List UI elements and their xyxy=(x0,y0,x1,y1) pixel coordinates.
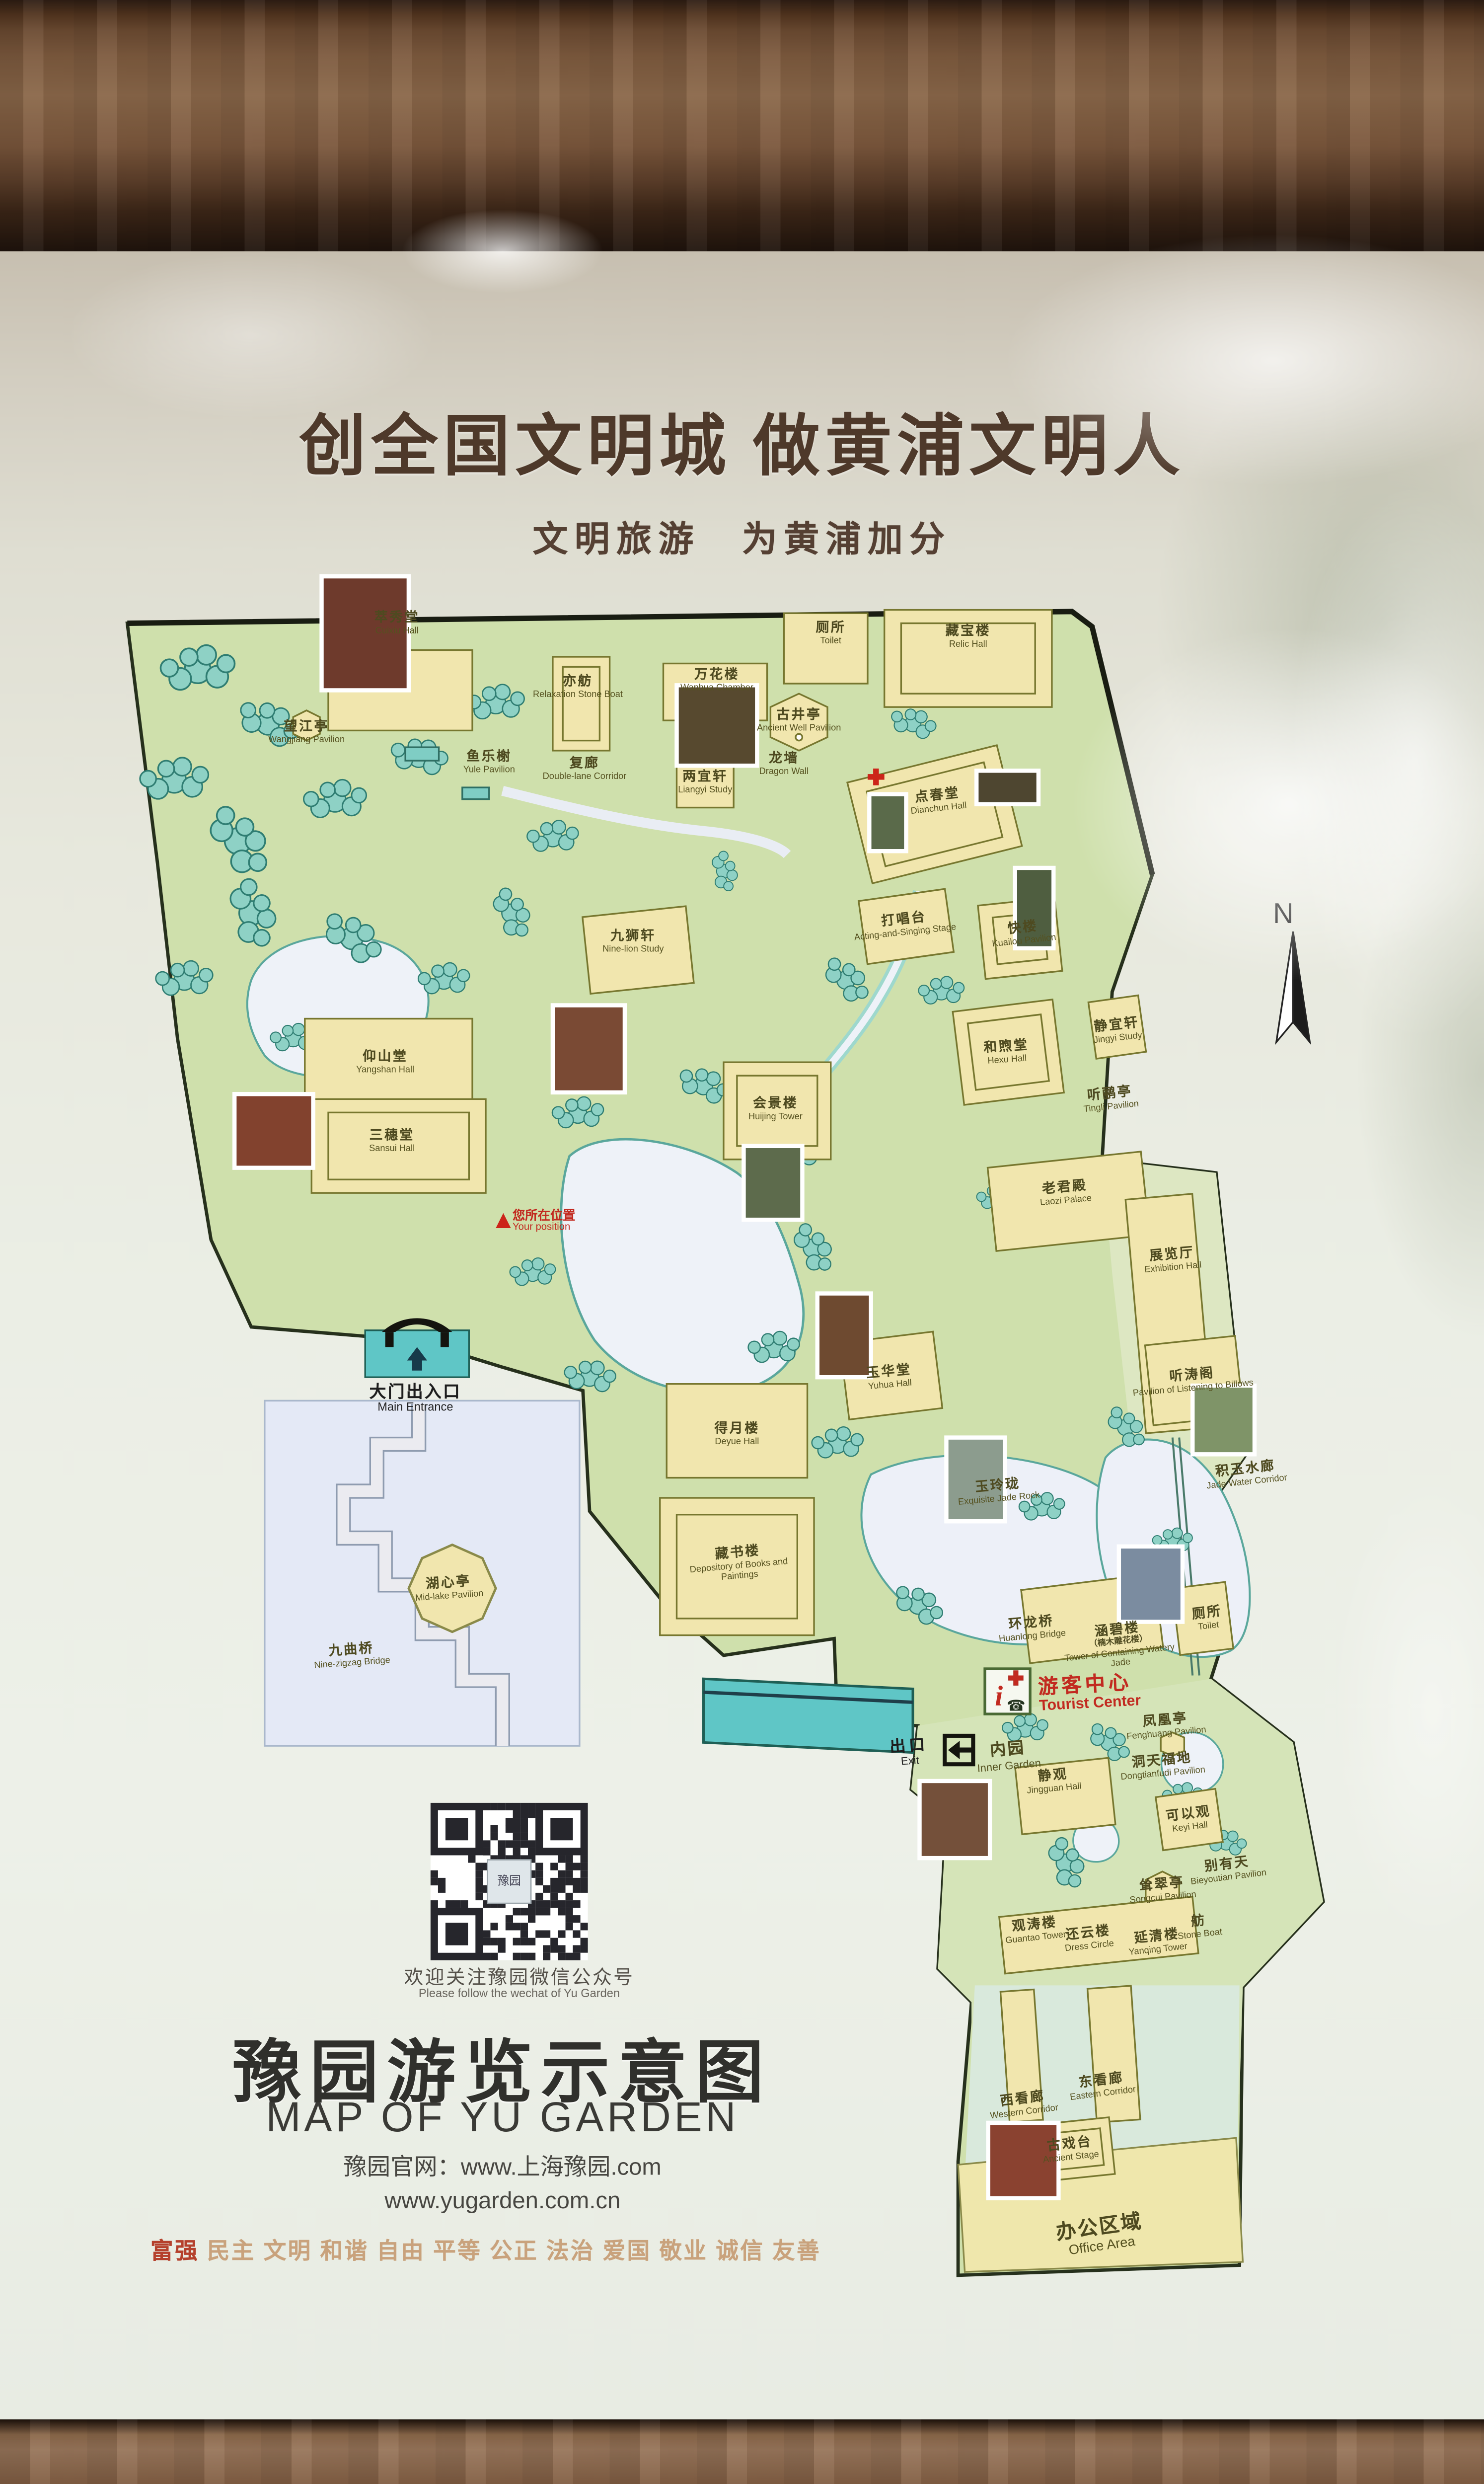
core-values-line: 富强 民主 文明 和谐 自由 平等 公正 法治 爱国 敬业 诚信 友善 xyxy=(17,2232,955,2265)
map-title-en: MAP OF YU GARDEN xyxy=(100,2095,904,2143)
qr-code: 豫园 xyxy=(431,1803,588,1960)
map-label: 九狮轩Nine-lion Study xyxy=(568,930,698,955)
map-label: 亦舫Relaxation Stone Boat xyxy=(513,675,643,700)
map-label: 九曲桥Nine-zigzag Bridge xyxy=(286,1639,418,1673)
map-label: 凤凰亭Fenghuang Pavilion xyxy=(1100,1708,1232,1745)
map-label: 得月楼Deyue Hall xyxy=(671,1422,802,1448)
compass-label: N xyxy=(1273,898,1293,931)
map-label: 可以观Keyi Hall xyxy=(1123,1800,1256,1841)
official-site-line: 豫园官网：www.上海豫园.com xyxy=(100,2150,904,2183)
exit-label: 出口 Exit xyxy=(880,1737,939,1771)
map-label: 萃秀堂Cuixiu Hall xyxy=(332,612,462,637)
map-label: 听鹂亭Tingli Pavilion xyxy=(1044,1081,1177,1119)
map-label: 三穗堂Sansui Hall xyxy=(327,1129,457,1155)
map-label: 打唱台Acting-and-Singing Stage xyxy=(838,906,971,945)
map-label: 古戏台Ancient Stage xyxy=(1004,2131,1137,2170)
map-label: 老君殿Laozi Palace xyxy=(999,1175,1131,1212)
map-label: 复廊Double-lane Corridor xyxy=(519,757,650,782)
map-label: 玉华堂Yuhua Hall xyxy=(823,1360,956,1396)
map-label: 藏宝楼Relic Hall xyxy=(903,625,1034,650)
svg-text:豫园: 豫园 xyxy=(498,1874,521,1887)
map-label: 展览厅Exhibition Hall xyxy=(1107,1242,1239,1279)
map-label: 别有天Bieyoutian Pavilion xyxy=(1161,1850,1294,1891)
map-label: 洞天福地Dongtianfudi Pavilion xyxy=(1096,1749,1228,1785)
map-label: 点春堂Dianchun Hall xyxy=(872,782,1004,821)
map-label: 古井亭Ancient Well Pavilion xyxy=(734,709,864,734)
map-label: 快楼Kuailou Pavilion xyxy=(957,915,1090,953)
map-label: 万花楼Wanhua Chamber xyxy=(652,669,782,694)
map-label: 藏书楼Depository of Books and Paintings xyxy=(672,1541,805,1587)
main-entrance-label: 大门出入口 Main Entrance xyxy=(328,1384,503,1415)
map-label: 厕所Toilet xyxy=(1141,1599,1274,1639)
your-position-marker: 您所在位置 Your position xyxy=(513,1210,664,1235)
map-label: 湖心亭Mid-lake Pavilion xyxy=(383,1572,515,1606)
map-label: 积玉水廊Jade Water Corridor xyxy=(1180,1456,1313,1495)
qr-caption-cn: 欢迎关注豫园微信公众号 xyxy=(201,1964,838,1991)
map-label: 望江亭Wangjiang Pavilion xyxy=(241,720,372,746)
qr-caption-en: Please follow the wechat of Yu Garden xyxy=(201,1989,838,2001)
map-label: 东看廊Eastern Corridor xyxy=(1036,2066,1168,2107)
map-label: 会景楼Huijing Tower xyxy=(710,1097,841,1123)
map-label: 和煦堂Hexu Hall xyxy=(941,1036,1073,1070)
map-label: 厕所Toilet xyxy=(765,621,896,647)
site-url-line: www.yugarden.com.cn xyxy=(100,2186,904,2213)
signboard-photo: 创全国文明城 做黄浦文明人 文明旅游 为黄浦加分 xyxy=(0,0,1484,2484)
map-label: 龙墙Dragon Wall xyxy=(719,752,849,777)
map-label: 仰山堂Yangshan Hall xyxy=(320,1051,450,1076)
map-label: 办公区域Office Area xyxy=(1033,2208,1168,2263)
map-label: 听涛阁Pavilion of Listening to Billows xyxy=(1126,1363,1259,1399)
map-label: 玉玲珑Exquisite Jade Rock xyxy=(932,1474,1064,1510)
